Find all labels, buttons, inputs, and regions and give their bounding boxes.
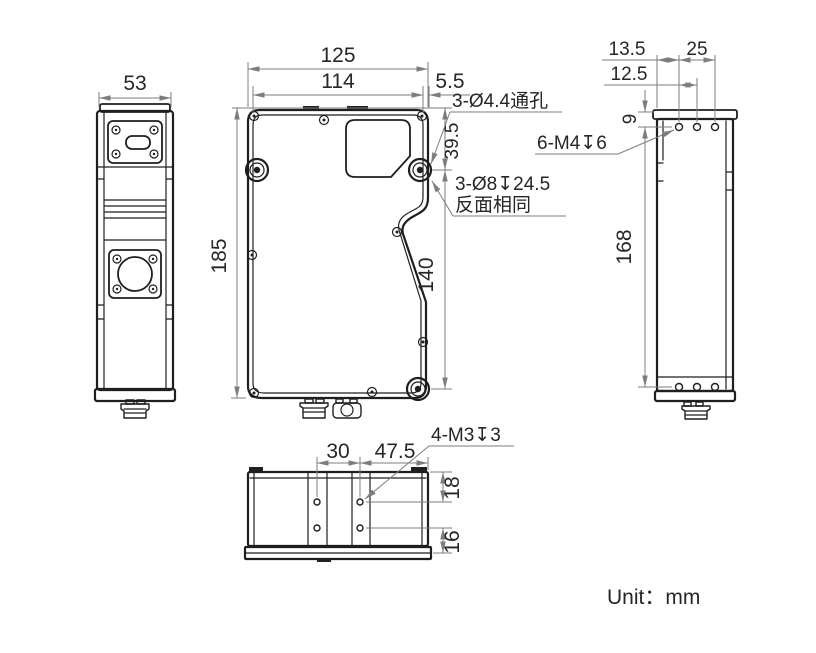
right-view-top-cap [653,110,737,119]
technical-drawing: 53 [0,0,816,653]
callout-counterbore-text2: 反面相同 [455,194,531,216]
tapped-hole [712,384,719,391]
dim-label-53: 53 [123,72,146,95]
callout-tapped-right-text: 6-M4↧6 [537,133,607,154]
dim-label-25: 25 [686,39,707,60]
callout-counterbore: 3-Ø8↧24.5 反面相同 [432,174,566,216]
dimension-overall-height: 185 [208,108,246,398]
left-view-ridges [104,200,166,218]
left-view-section-line [97,167,173,179]
right-view-connector [682,402,710,419]
mounting-boss-top-left [246,159,268,181]
dim-label-185: 185 [208,238,231,273]
right-view-seam-lines [663,121,726,389]
dim-label-13-5: 13.5 [609,39,646,60]
left-view-notches [97,305,173,319]
dim-label-18: 18 [441,476,464,499]
callout-tapped-bottom-text: 4-M3↧3 [431,425,501,446]
callout-through-holes-text: 3-Ø4.4通孔 [452,90,548,112]
tapped-hole [712,124,719,131]
front-view-body-outline [248,110,428,398]
left-view-connector [121,400,149,418]
dim-label-30: 30 [326,440,349,463]
dimension-hole-pitch: 12.5 [604,64,697,85]
left-view-lens-panel [109,250,161,298]
dim-label-140: 140 [415,257,438,292]
front-view: 125 114 5.5 185 39.5 [208,44,566,418]
dimension-top-to-hole-right: 9 [620,90,672,127]
unit-note: Unit：mm [607,586,700,609]
tapped-hole [676,384,683,391]
dimension-top-to-hole: 39.5 [432,108,463,170]
callout-tapped-holes-right: 6-M4↧6 [535,130,674,154]
dim-label-114: 114 [321,70,355,93]
dim-label-16: 16 [441,530,464,553]
right-view-base-plate [655,391,735,401]
front-view-connector-left [300,399,328,418]
dim-label-168: 168 [613,229,636,264]
dimension-bottom-hole-pitch: 30 [317,440,360,463]
tapped-hole [314,525,320,531]
dim-label-12-5: 12.5 [611,64,648,85]
dim-label-47-5: 47.5 [375,440,416,463]
dimension-bottom-top-offset: 18 [366,472,464,502]
tapped-hole [676,124,683,131]
bottom-view: 30 47.5 4-M3↧3 18 16 [245,425,514,562]
dimension-hole-span: 25 [679,39,715,60]
dimension-bottom-bottom-offset: 16 [366,528,464,554]
tapped-hole [357,525,363,531]
drawing-page: 53 [0,0,816,653]
right-side-view: 13.5 25 12.5 9 168 6-M4↧6 [535,39,737,419]
slot-opening [126,136,150,149]
left-side-view: 53 [95,72,175,418]
dimension-hole-vertical-span-right: 168 [613,127,672,387]
dim-label-9: 9 [620,114,641,125]
front-view-screws [248,112,428,398]
dimension-left-width: 53 [99,72,171,107]
dim-label-125: 125 [320,44,355,67]
bottom-view-body-outline [248,472,428,546]
dim-label-5-5: 5.5 [435,70,464,93]
right-view-extension-lines [657,55,715,122]
lens-window [118,257,152,291]
dimension-mount-hole-span: 114 [253,70,423,113]
bottom-view-bump [317,559,331,562]
tapped-hole [694,124,701,131]
right-view-notches [657,163,733,190]
tapped-hole [314,499,320,505]
front-view-panel-cutout [346,120,410,177]
callout-counterbore-text: 3-Ø8↧24.5 [455,174,550,195]
front-view-connector-right [333,399,361,418]
tapped-hole [694,384,701,391]
dimension-edge-to-hole: 13.5 [602,39,679,60]
bottom-view-edge-lines [250,473,426,545]
front-view-inner-line [253,115,423,393]
left-view-top-panel [108,121,162,163]
tapped-hole [357,499,363,505]
dim-label-39-5: 39.5 [442,123,463,160]
dimension-bottom-hole-to-edge: 47.5 [360,440,428,463]
right-view-body-outline [657,119,733,391]
